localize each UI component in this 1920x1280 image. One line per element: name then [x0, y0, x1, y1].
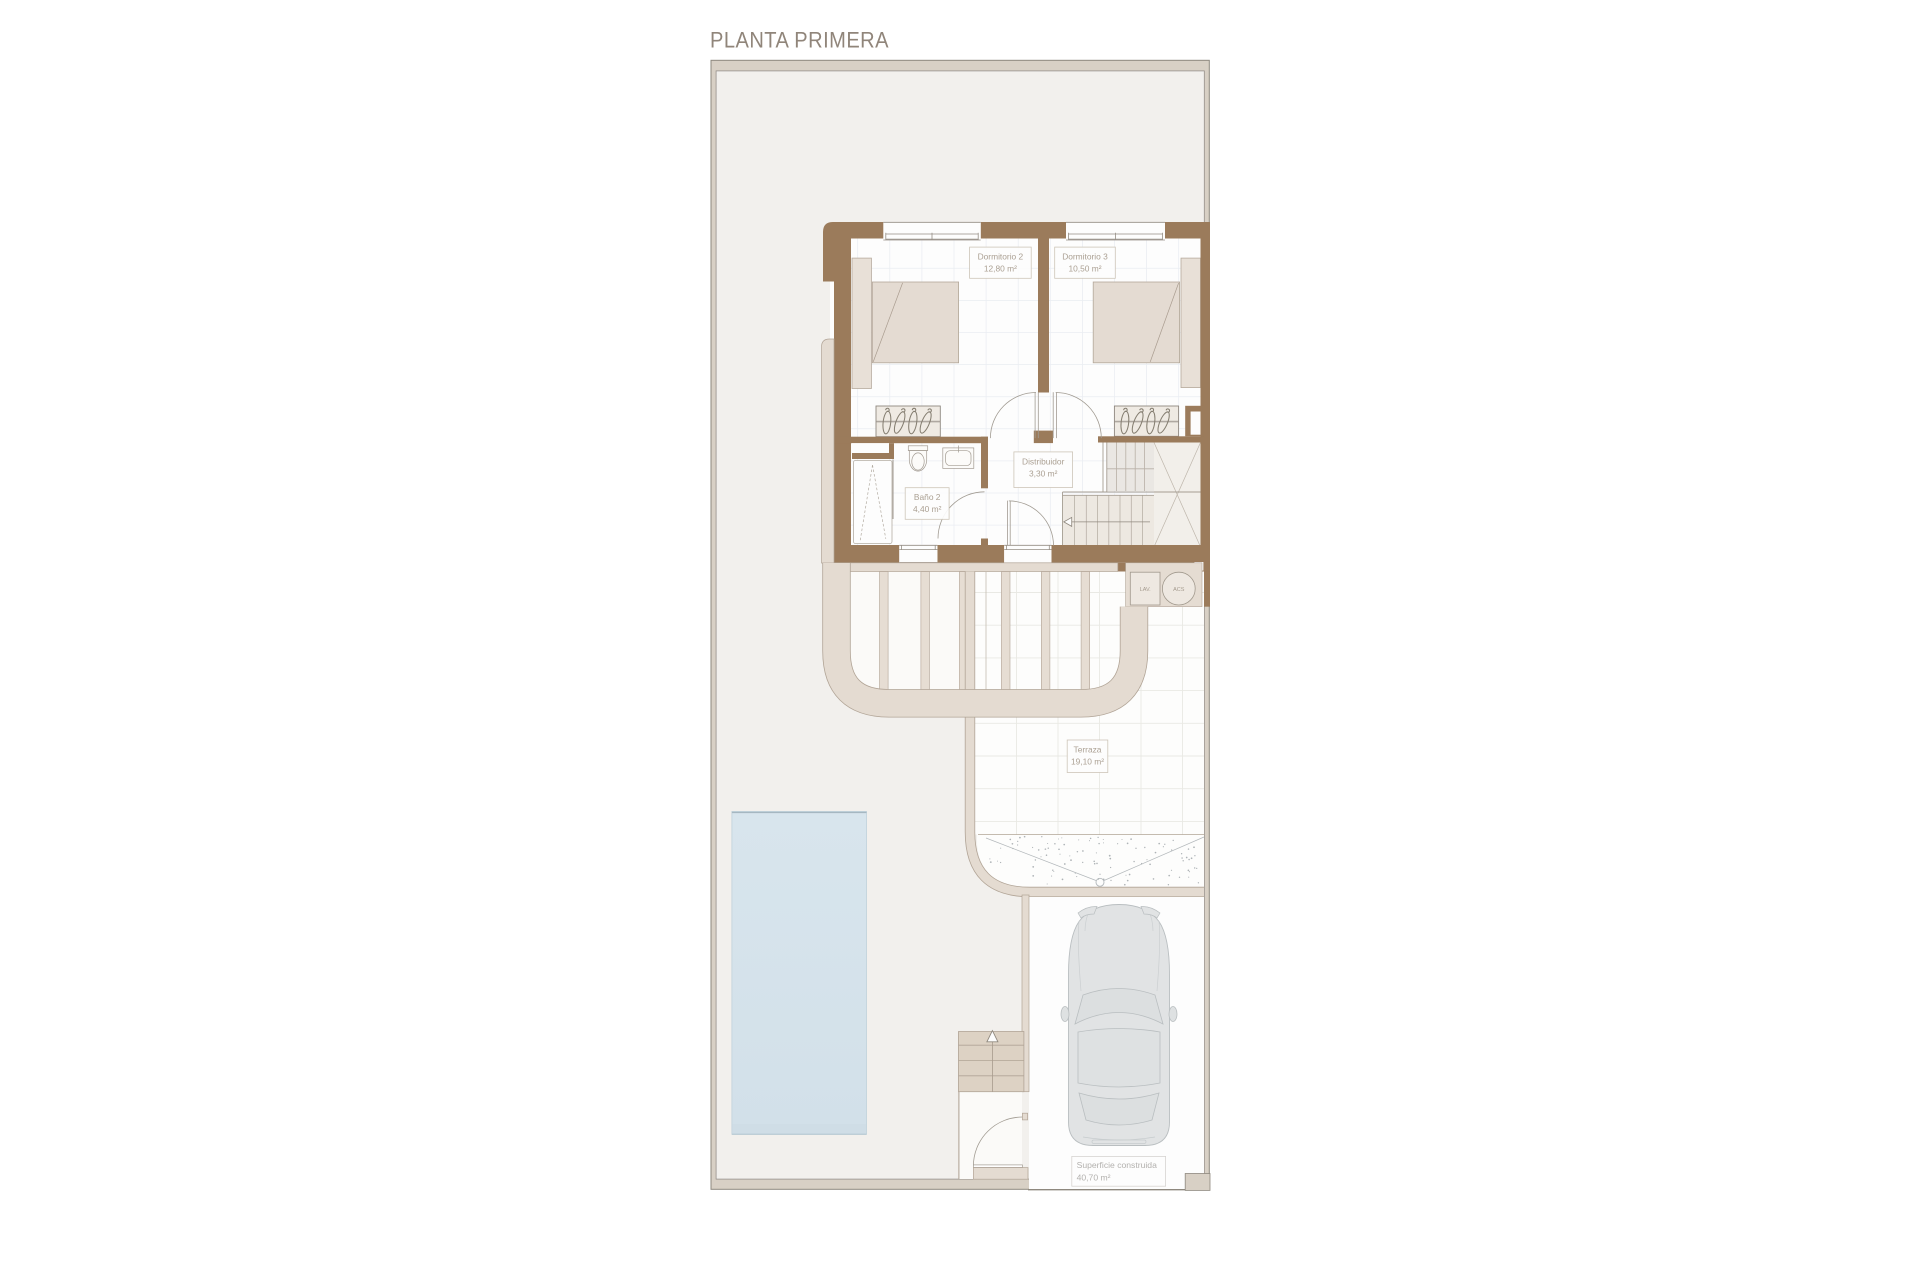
- svg-text:Dormitorio 3: Dormitorio 3: [1062, 252, 1108, 262]
- svg-text:Terraza: Terraza: [1074, 745, 1102, 755]
- svg-text:Baño 2: Baño 2: [914, 492, 941, 502]
- svg-text:10,50 m²: 10,50 m²: [1068, 264, 1101, 274]
- svg-text:Superficie construida: Superficie construida: [1077, 1160, 1157, 1170]
- svg-text:PLANTA PRIMERA: PLANTA PRIMERA: [710, 28, 889, 53]
- svg-text:Distribuidor: Distribuidor: [1022, 456, 1065, 466]
- svg-text:LAV.: LAV.: [1140, 587, 1151, 593]
- svg-text:40,70 m²: 40,70 m²: [1077, 1173, 1111, 1183]
- svg-text:12,80 m²: 12,80 m²: [984, 264, 1017, 274]
- svg-text:4,40 m²: 4,40 m²: [913, 504, 942, 514]
- svg-text:Dormitorio 2: Dormitorio 2: [978, 252, 1024, 262]
- svg-text:3,30 m²: 3,30 m²: [1029, 468, 1058, 478]
- svg-text:19,10 m²: 19,10 m²: [1071, 757, 1104, 767]
- svg-text:ACS: ACS: [1173, 587, 1185, 593]
